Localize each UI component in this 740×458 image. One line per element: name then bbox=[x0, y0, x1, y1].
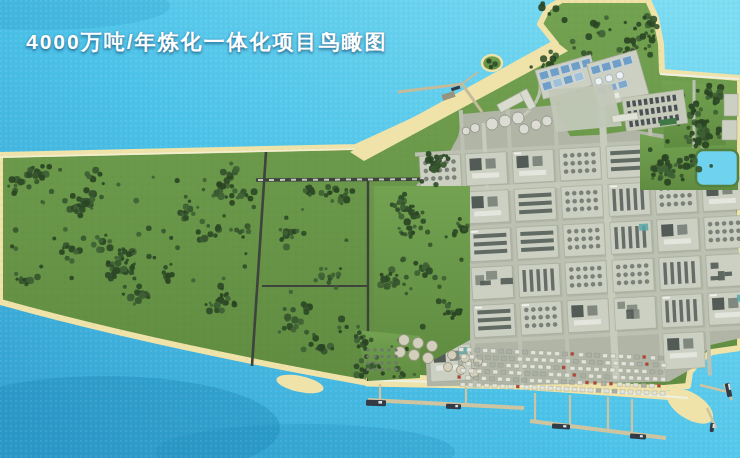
small-tank bbox=[617, 273, 621, 277]
tree bbox=[220, 183, 226, 189]
small-tank bbox=[577, 275, 581, 279]
tree bbox=[226, 296, 231, 301]
small-tank bbox=[736, 221, 740, 225]
tree bbox=[15, 278, 18, 281]
module-unit bbox=[650, 370, 655, 374]
tree bbox=[96, 247, 102, 253]
tree bbox=[284, 314, 291, 321]
tree bbox=[425, 229, 430, 234]
module-unit bbox=[517, 357, 522, 361]
tree bbox=[683, 163, 690, 170]
tree bbox=[243, 264, 247, 268]
tree bbox=[13, 184, 17, 188]
tree bbox=[291, 316, 298, 323]
tree bbox=[229, 161, 233, 165]
module-unit bbox=[514, 364, 519, 368]
module-unit bbox=[525, 371, 530, 375]
tree bbox=[651, 172, 656, 177]
tree bbox=[91, 242, 97, 248]
tree bbox=[650, 29, 654, 33]
plant-block bbox=[708, 291, 740, 325]
tree bbox=[690, 160, 693, 163]
small-tank bbox=[584, 152, 588, 156]
tree bbox=[40, 164, 45, 169]
module-unit bbox=[517, 371, 522, 375]
tree bbox=[175, 245, 180, 250]
module-unit bbox=[564, 387, 569, 391]
tree bbox=[696, 89, 700, 93]
module-unit bbox=[553, 380, 558, 384]
flare-unit bbox=[609, 382, 612, 385]
small-tank bbox=[584, 283, 588, 287]
tree bbox=[633, 27, 637, 31]
small-tank bbox=[394, 348, 397, 351]
module-unit bbox=[629, 376, 634, 380]
ship bbox=[446, 404, 461, 410]
module-unit bbox=[485, 370, 490, 374]
tree bbox=[357, 330, 362, 335]
module-unit bbox=[577, 381, 582, 385]
module-unit bbox=[509, 357, 514, 361]
process-unit bbox=[710, 262, 718, 268]
tree bbox=[324, 267, 327, 270]
module-unit bbox=[637, 376, 642, 380]
tree bbox=[670, 173, 675, 178]
small-tank bbox=[575, 245, 579, 249]
tree bbox=[317, 344, 324, 351]
module-unit bbox=[618, 354, 623, 358]
tree bbox=[337, 325, 341, 329]
tree bbox=[69, 276, 74, 281]
module-unit bbox=[587, 353, 592, 357]
module-unit bbox=[554, 366, 559, 370]
module-unit bbox=[557, 359, 562, 363]
sphere-tank bbox=[471, 124, 480, 133]
module-unit bbox=[649, 384, 654, 388]
tree bbox=[392, 203, 397, 208]
tree bbox=[222, 214, 226, 218]
tree bbox=[644, 47, 647, 50]
small-tank bbox=[578, 161, 582, 165]
tree bbox=[369, 338, 374, 343]
tree bbox=[330, 199, 334, 203]
small-tank bbox=[546, 323, 550, 327]
tree bbox=[13, 227, 19, 233]
tree bbox=[308, 342, 313, 347]
small-tank bbox=[373, 368, 376, 371]
small-tank bbox=[598, 274, 602, 278]
tree bbox=[681, 177, 685, 181]
small-tank bbox=[452, 167, 456, 171]
tree bbox=[88, 190, 94, 196]
small-tank bbox=[623, 265, 627, 269]
sphere-tank bbox=[542, 116, 552, 126]
module-unit bbox=[521, 378, 526, 382]
small-tank bbox=[591, 274, 595, 278]
storage-tank bbox=[413, 338, 424, 349]
tree bbox=[402, 282, 406, 286]
small-tank bbox=[709, 238, 713, 242]
utility-pad-ne bbox=[724, 94, 738, 116]
small-tank bbox=[585, 168, 589, 172]
tree bbox=[90, 202, 93, 205]
tree bbox=[390, 345, 393, 348]
tree bbox=[191, 278, 195, 282]
tree bbox=[343, 193, 348, 198]
tree bbox=[136, 232, 141, 237]
tree bbox=[360, 375, 364, 379]
tree bbox=[458, 217, 462, 221]
small-tank bbox=[594, 206, 598, 210]
small-tank bbox=[730, 237, 734, 241]
tree bbox=[642, 16, 646, 20]
tree bbox=[562, 17, 568, 23]
tree bbox=[445, 235, 448, 238]
plant-block bbox=[563, 223, 606, 257]
tree bbox=[414, 270, 420, 276]
tree bbox=[146, 254, 151, 259]
module-unit bbox=[618, 368, 623, 372]
plant-block bbox=[659, 256, 702, 290]
module-unit bbox=[569, 380, 574, 384]
small-tank bbox=[525, 324, 529, 328]
tree bbox=[658, 177, 663, 182]
module-unit bbox=[641, 383, 646, 387]
small-tank bbox=[644, 271, 648, 275]
module-unit bbox=[529, 378, 534, 382]
tree bbox=[206, 224, 210, 228]
tree bbox=[413, 225, 417, 229]
tree bbox=[538, 4, 545, 11]
tree bbox=[356, 325, 360, 329]
tree bbox=[121, 247, 125, 251]
small-tank bbox=[584, 275, 588, 279]
small-tank bbox=[577, 153, 581, 157]
utility-pad-ne bbox=[722, 120, 737, 140]
small-tank bbox=[688, 201, 692, 205]
tree bbox=[717, 135, 721, 139]
flare-unit bbox=[562, 366, 565, 369]
ship bbox=[366, 400, 386, 407]
plant-pad bbox=[663, 332, 706, 370]
tree bbox=[705, 119, 709, 123]
tree bbox=[106, 244, 113, 251]
tree bbox=[409, 287, 413, 291]
module-unit bbox=[458, 361, 463, 365]
sphere-tank bbox=[519, 124, 529, 134]
tree bbox=[188, 200, 191, 203]
small-tank bbox=[568, 237, 572, 241]
ship-bridge bbox=[563, 425, 566, 427]
tree bbox=[330, 347, 334, 351]
ship-bridge bbox=[640, 435, 643, 437]
label-board bbox=[710, 294, 717, 296]
process-unit bbox=[667, 338, 680, 351]
module-unit bbox=[644, 390, 649, 394]
tree bbox=[421, 218, 426, 223]
tree bbox=[684, 156, 689, 161]
module-unit bbox=[586, 367, 591, 371]
module-unit bbox=[660, 391, 665, 395]
small-tank bbox=[715, 230, 719, 234]
tree bbox=[636, 22, 641, 27]
project-aerial-rendering: 4000万吨/年炼化一体化项目鸟瞰图 bbox=[0, 0, 740, 458]
small-tank bbox=[592, 168, 596, 172]
tree bbox=[319, 190, 325, 196]
tree bbox=[115, 260, 122, 267]
process-unit bbox=[487, 196, 498, 207]
module-unit bbox=[653, 377, 658, 381]
small-tank bbox=[616, 265, 620, 269]
module-unit bbox=[533, 372, 538, 376]
tree bbox=[546, 61, 551, 66]
tree bbox=[415, 211, 419, 215]
module-unit bbox=[493, 356, 498, 360]
tree bbox=[133, 302, 136, 305]
tree bbox=[426, 267, 433, 274]
small-tank bbox=[380, 361, 383, 364]
tree bbox=[233, 166, 240, 173]
module-unit bbox=[610, 368, 615, 372]
ship-hull bbox=[366, 400, 386, 407]
module-unit bbox=[597, 374, 602, 378]
tree bbox=[647, 52, 653, 58]
tree bbox=[63, 227, 68, 232]
small-tank bbox=[394, 355, 397, 358]
tree bbox=[442, 299, 447, 304]
module-unit bbox=[658, 356, 663, 360]
small-tank bbox=[708, 222, 712, 226]
process-unit bbox=[617, 302, 625, 310]
small-tank bbox=[424, 177, 428, 181]
process-unit bbox=[485, 158, 496, 169]
small-tank bbox=[445, 168, 449, 172]
tree bbox=[65, 245, 68, 248]
tree bbox=[58, 168, 62, 172]
tree bbox=[161, 229, 166, 234]
tree bbox=[404, 275, 409, 280]
tree bbox=[696, 104, 699, 107]
module-unit bbox=[507, 349, 512, 353]
small-tank bbox=[595, 228, 599, 232]
tree bbox=[334, 188, 340, 194]
plant-block bbox=[610, 220, 653, 254]
small-tank bbox=[587, 198, 591, 202]
module-unit bbox=[589, 374, 594, 378]
small-tank bbox=[588, 228, 592, 232]
tree bbox=[344, 325, 348, 329]
tree bbox=[713, 110, 718, 115]
tree bbox=[301, 301, 307, 307]
tree bbox=[290, 307, 295, 312]
small-tank bbox=[673, 194, 677, 198]
tree bbox=[304, 330, 309, 335]
plant-block bbox=[559, 147, 602, 181]
tree bbox=[169, 263, 172, 266]
tree bbox=[359, 367, 364, 372]
tree bbox=[716, 126, 723, 133]
small-tank bbox=[637, 264, 641, 268]
tree bbox=[540, 55, 547, 62]
tree bbox=[214, 302, 221, 309]
tree bbox=[245, 223, 251, 229]
module-unit bbox=[650, 356, 655, 360]
tree bbox=[640, 33, 646, 39]
module-unit bbox=[484, 383, 489, 387]
tree bbox=[411, 231, 416, 236]
tree bbox=[654, 24, 659, 29]
process-unit bbox=[710, 276, 718, 281]
small-tank bbox=[387, 368, 390, 371]
small-tank bbox=[366, 348, 369, 351]
module-unit bbox=[605, 361, 610, 365]
small-tank bbox=[708, 230, 712, 234]
small-tank bbox=[574, 229, 578, 233]
small-tank bbox=[570, 283, 574, 287]
tree bbox=[418, 226, 423, 231]
tree bbox=[326, 280, 331, 285]
tree bbox=[421, 211, 425, 215]
small-tank bbox=[645, 279, 649, 283]
tree bbox=[41, 200, 45, 204]
module-unit bbox=[636, 390, 641, 394]
module-unit bbox=[485, 356, 490, 360]
tree bbox=[152, 175, 155, 178]
tree bbox=[651, 177, 654, 180]
small-tank bbox=[716, 238, 720, 242]
small-tank bbox=[524, 308, 528, 312]
tree bbox=[624, 21, 627, 24]
label-board bbox=[522, 304, 529, 306]
tree bbox=[119, 252, 124, 257]
plant-block bbox=[661, 294, 704, 328]
module-unit bbox=[588, 388, 593, 392]
tree bbox=[401, 256, 406, 261]
small-tank bbox=[597, 266, 601, 270]
tree bbox=[246, 229, 251, 234]
flare-unit bbox=[457, 375, 460, 378]
tree bbox=[183, 203, 189, 209]
small-tank bbox=[729, 221, 733, 225]
tree bbox=[570, 39, 576, 45]
tree bbox=[9, 176, 16, 183]
tree bbox=[327, 275, 331, 279]
tree bbox=[303, 189, 308, 194]
tree bbox=[407, 226, 412, 231]
tree bbox=[608, 28, 611, 31]
tree bbox=[550, 56, 557, 63]
small-tank bbox=[445, 176, 449, 180]
tree bbox=[278, 330, 282, 334]
tree bbox=[452, 312, 457, 317]
tree bbox=[392, 375, 395, 378]
small-tank bbox=[373, 355, 376, 358]
small-tank bbox=[582, 237, 586, 241]
plant-block bbox=[704, 215, 740, 249]
tree bbox=[390, 281, 393, 284]
small-tank bbox=[451, 159, 455, 163]
plant-block bbox=[471, 266, 514, 300]
tree bbox=[95, 235, 100, 240]
module-unit bbox=[541, 372, 546, 376]
module-unit bbox=[491, 349, 496, 353]
small-tank bbox=[660, 203, 664, 207]
plant-block bbox=[663, 332, 706, 370]
storage-tank bbox=[444, 363, 453, 372]
process-unit bbox=[626, 309, 634, 319]
storage-tank bbox=[423, 353, 434, 364]
module-unit bbox=[629, 362, 634, 366]
small-tank bbox=[571, 161, 575, 165]
small-tank bbox=[596, 236, 600, 240]
module-unit bbox=[477, 369, 482, 373]
module-unit bbox=[490, 363, 495, 367]
tree bbox=[426, 151, 432, 157]
tree bbox=[121, 257, 125, 261]
tree bbox=[34, 274, 40, 280]
tree bbox=[196, 229, 201, 234]
tree bbox=[183, 210, 187, 214]
module-unit bbox=[515, 350, 520, 354]
module-unit bbox=[602, 354, 607, 358]
tree bbox=[232, 188, 237, 193]
flare-unit bbox=[593, 381, 596, 384]
tree bbox=[230, 184, 234, 188]
flare-unit bbox=[516, 385, 519, 388]
tree bbox=[229, 228, 233, 232]
tree bbox=[338, 330, 342, 334]
small-tank bbox=[581, 229, 585, 233]
tree bbox=[238, 192, 245, 199]
module-unit bbox=[589, 360, 594, 364]
module-unit bbox=[602, 368, 607, 372]
module-unit bbox=[545, 379, 550, 383]
tree bbox=[696, 137, 702, 143]
small-tank bbox=[631, 280, 635, 284]
module-unit bbox=[539, 351, 544, 355]
flare-unit bbox=[585, 381, 588, 384]
module-unit bbox=[468, 383, 473, 387]
small-tank bbox=[570, 275, 574, 279]
flare-unit bbox=[657, 384, 660, 387]
small-tank bbox=[681, 201, 685, 205]
module-unit bbox=[610, 354, 615, 358]
module-unit bbox=[493, 370, 498, 374]
module-unit bbox=[561, 380, 566, 384]
tree bbox=[13, 246, 18, 251]
tree bbox=[547, 12, 551, 16]
module-unit bbox=[473, 376, 478, 380]
module-unit bbox=[597, 360, 602, 364]
lagoon bbox=[696, 150, 738, 186]
module-unit bbox=[653, 363, 658, 367]
tree bbox=[420, 324, 426, 330]
tree bbox=[293, 324, 298, 329]
tree bbox=[163, 265, 168, 270]
tree bbox=[183, 215, 189, 221]
tree bbox=[216, 224, 221, 229]
small-tank bbox=[553, 314, 557, 318]
tree bbox=[69, 258, 74, 263]
tree bbox=[442, 154, 445, 157]
tree bbox=[61, 250, 64, 253]
process-unit bbox=[571, 305, 584, 318]
tree bbox=[620, 47, 623, 50]
tree bbox=[689, 154, 692, 157]
tree bbox=[705, 96, 709, 100]
tree bbox=[684, 135, 689, 140]
module-unit bbox=[594, 353, 599, 357]
